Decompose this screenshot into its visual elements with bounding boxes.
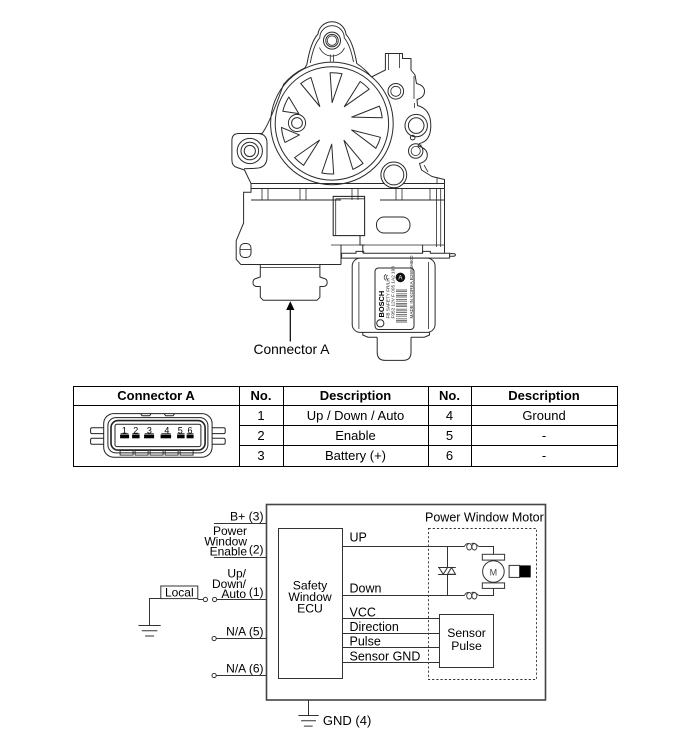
svg-text:(1): (1) [249, 585, 264, 599]
svg-text:N/A (6): N/A (6) [226, 661, 263, 675]
svg-text:Power Window Motor: Power Window Motor [425, 511, 544, 525]
svg-text:Sensor GND: Sensor GND [350, 650, 421, 664]
svg-text:GND (4): GND (4) [323, 713, 371, 728]
svg-text:N/A (5): N/A (5) [226, 624, 263, 638]
svg-text:VCC: VCC [350, 605, 376, 619]
svg-text:F952 12V F 005 1A2 193: F952 12V F 005 1A2 193 [390, 266, 395, 319]
svg-text:A: A [398, 276, 402, 282]
svg-text:Local: Local [165, 585, 194, 599]
svg-text:Direction: Direction [350, 620, 399, 634]
svg-text:Down: Down [350, 581, 382, 595]
svg-text:MADE IN KOREA B2684H600: MADE IN KOREA B2684H600 [409, 255, 414, 318]
svg-text:ECU: ECU [297, 602, 323, 616]
svg-text:(2): (2) [249, 543, 264, 557]
svg-text:M: M [490, 568, 498, 578]
svg-text:Pulse: Pulse [451, 639, 482, 653]
svg-text:Sensor: Sensor [447, 626, 486, 640]
svg-text:Pulse: Pulse [350, 635, 381, 649]
svg-text:Enable: Enable [210, 545, 248, 559]
svg-text:UP: UP [350, 530, 367, 544]
svg-text:B+ (3): B+ (3) [230, 509, 264, 523]
svg-text:Connector A: Connector A [254, 342, 331, 357]
